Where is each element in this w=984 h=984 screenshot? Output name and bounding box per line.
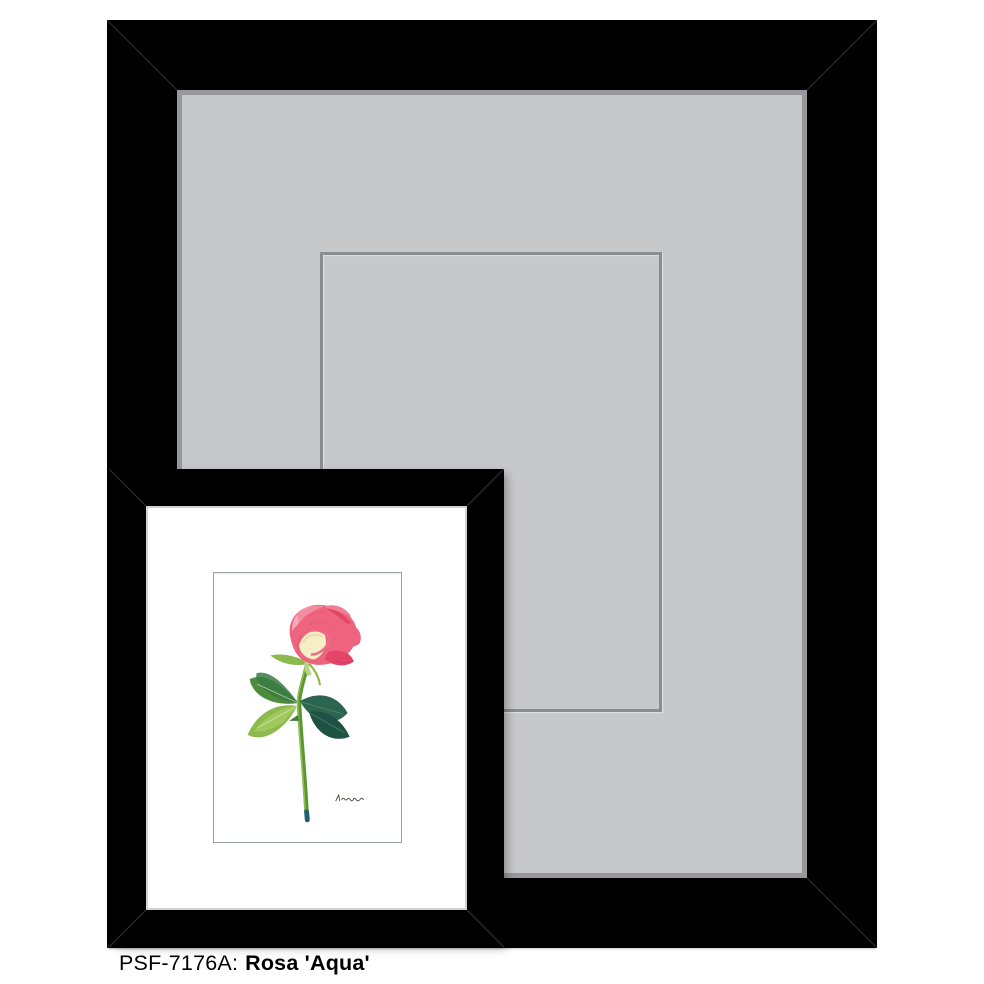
sample-frame bbox=[109, 469, 504, 947]
rose-illustration bbox=[214, 573, 401, 842]
caption-title: Rosa 'Aqua' bbox=[245, 951, 370, 975]
caption: PSF-7176A:Rosa 'Aqua' bbox=[119, 951, 370, 976]
product-preview-page: PSF-7176A:Rosa 'Aqua' bbox=[0, 0, 984, 984]
rose-art-print bbox=[213, 572, 402, 843]
artist-signature bbox=[336, 795, 364, 801]
caption-sku: PSF-7176A: bbox=[119, 951, 238, 975]
